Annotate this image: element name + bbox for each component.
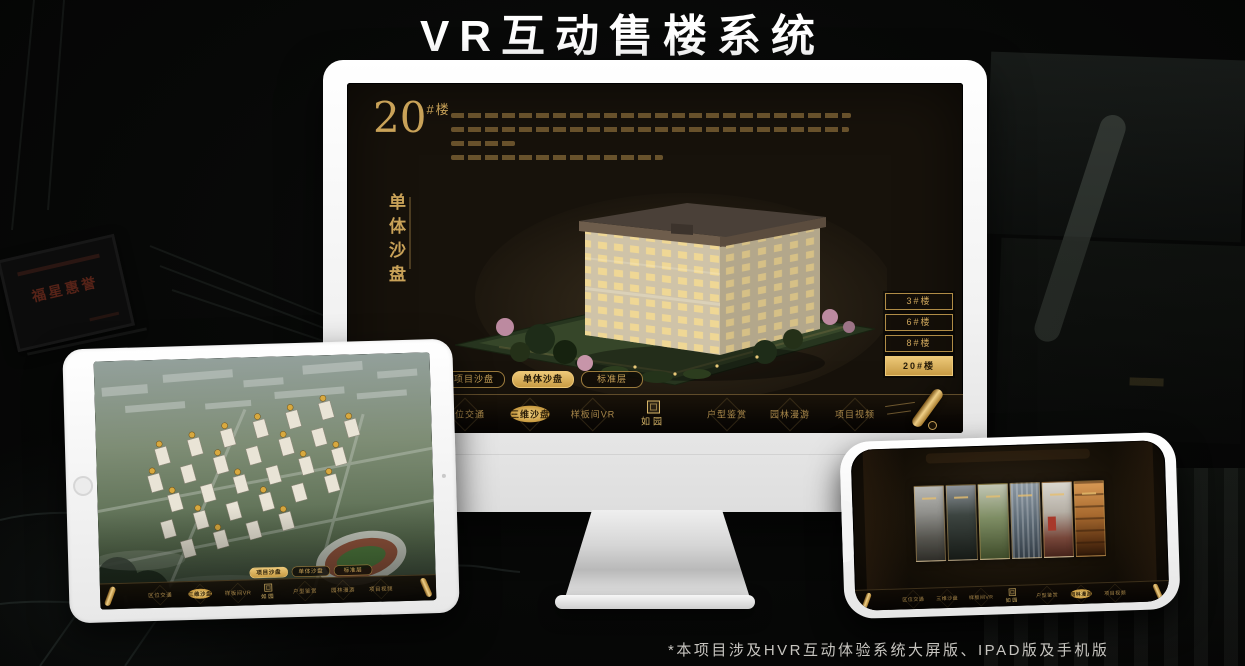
tablet-menu-item-location-traffic[interactable]: 区位交通 bbox=[144, 588, 177, 603]
phone-menu-item-garden-roam-selected[interactable]: 园林漫游 bbox=[1066, 587, 1096, 601]
scroll-end-left bbox=[104, 586, 117, 607]
footnote-text: *本项目涉及HVR互动体验系统大屏版、IPAD版及手机版 bbox=[668, 639, 1109, 660]
scroll-end-right bbox=[1152, 583, 1163, 600]
phone-notch bbox=[841, 499, 854, 561]
tablet-menu-item-showroom-vr[interactable]: 样板间VR bbox=[220, 585, 255, 600]
monitor-stand-neck bbox=[565, 510, 750, 598]
floor-button-6[interactable]: 6#楼 bbox=[885, 314, 953, 331]
scroll-end-right bbox=[419, 577, 433, 598]
scroll-menu-icon[interactable] bbox=[885, 386, 941, 432]
gallery-panel-entrance[interactable] bbox=[946, 484, 978, 561]
tablet-tab-project-sandtable-selected[interactable]: 项目沙盘 bbox=[249, 567, 288, 579]
tablet-menu-item-3d-sandtable-selected[interactable]: 三维沙盘 bbox=[184, 586, 217, 601]
description-line bbox=[451, 155, 663, 160]
tablet-device: 项目沙盘 单体沙盘 标准层 区位交通 三维沙盘 样板间VR 如园 户型鉴赏 园林… bbox=[62, 339, 459, 624]
tab-standard-floor[interactable]: 标准层 bbox=[581, 371, 643, 388]
description-line bbox=[451, 113, 851, 118]
interior-column-decor bbox=[1110, 440, 1157, 602]
description-line bbox=[451, 141, 515, 146]
background-collage-dark-ui bbox=[995, 238, 1245, 444]
monitor-stand-foot bbox=[555, 595, 755, 609]
tab-single-sandtable-selected[interactable]: 单体沙盘 bbox=[512, 371, 574, 388]
tablet-screen: 项目沙盘 单体沙盘 标准层 区位交通 三维沙盘 样板间VR 如园 户型鉴赏 园林… bbox=[94, 352, 437, 609]
scroll-end-left bbox=[862, 592, 872, 609]
menu-item-3d-sandtable-selected[interactable]: 三维沙盘 bbox=[503, 403, 557, 426]
seal-icon bbox=[264, 584, 272, 592]
gallery-panel-lobby[interactable] bbox=[1042, 481, 1074, 558]
unit-subtitle-english-decor bbox=[409, 197, 411, 269]
poster-stage: 福星惠誉 VR互动售楼系统 20#楼 单体沙盘 bbox=[0, 0, 1245, 666]
brand-logo-text: 如园 bbox=[261, 592, 276, 600]
phone-menu-item-3d-sandtable[interactable]: 三维沙盘 bbox=[932, 591, 962, 605]
phone-menu-item-unit-plans[interactable]: 户型鉴赏 bbox=[1032, 588, 1062, 602]
page-title: VR互动售楼系统 bbox=[0, 0, 1245, 64]
tablet-menu-item-project-video[interactable]: 项目视频 bbox=[365, 581, 398, 596]
tablet-menu-item-garden-roam[interactable]: 园林漫游 bbox=[327, 582, 360, 597]
menu-item-garden-roam[interactable]: 园林漫游 bbox=[763, 403, 817, 426]
interior-beam-decor bbox=[926, 448, 1089, 463]
unit-number: 20 bbox=[373, 93, 426, 142]
menu-item-unit-plans[interactable]: 户型鉴赏 bbox=[700, 403, 754, 426]
floor-button-3[interactable]: 3#楼 bbox=[885, 293, 953, 310]
brand-logo: 如园 bbox=[1005, 588, 1019, 603]
seal-icon bbox=[646, 401, 659, 414]
phone-menu-item-location-traffic[interactable]: 区位交通 bbox=[898, 592, 928, 606]
menu-item-showroom-vr[interactable]: 样板间VR bbox=[564, 403, 623, 426]
phone-device: 区位交通 三维沙盘 样板间VR 如园 户型鉴赏 园林漫游 项目视频 bbox=[839, 432, 1180, 619]
unit-number-suffix: #楼 bbox=[426, 102, 450, 117]
brand-logo-text: 如园 bbox=[641, 415, 665, 428]
unit-subtitle-vertical: 单体沙盘 bbox=[383, 193, 408, 289]
interior-column-decor bbox=[863, 448, 910, 610]
brand-logo: 如园 bbox=[261, 584, 276, 601]
gallery-panel-interior[interactable] bbox=[1074, 480, 1106, 557]
scroll-swirl-line bbox=[885, 402, 915, 407]
menu-item-project-video[interactable]: 项目视频 bbox=[828, 403, 882, 426]
brand-logo: 如园 bbox=[641, 401, 665, 428]
scroll-knob bbox=[928, 421, 937, 430]
tablet-tab-single-sandtable[interactable]: 单体沙盘 bbox=[292, 566, 331, 578]
description-line bbox=[451, 127, 849, 132]
phone-menu-item-project-video[interactable]: 项目视频 bbox=[1100, 586, 1130, 600]
floor-button-8[interactable]: 8#楼 bbox=[885, 335, 953, 352]
tablet-menu-item-unit-plans[interactable]: 户型鉴赏 bbox=[289, 583, 322, 598]
seal-icon bbox=[1008, 588, 1015, 595]
phone-screen: 区位交通 三维沙盘 样板间VR 如园 户型鉴赏 园林漫游 项目视频 bbox=[851, 440, 1170, 611]
gallery-panel-garden[interactable] bbox=[978, 483, 1010, 560]
tablet-tab-standard-floor[interactable]: 标准层 bbox=[334, 564, 373, 576]
phone-menu-item-showroom-vr[interactable]: 样板间VR bbox=[965, 590, 998, 604]
floor-button-20-selected[interactable]: 20#楼 bbox=[885, 356, 953, 376]
background-collage-aerial-photo bbox=[985, 52, 1245, 243]
unit-title-block: 20#楼 bbox=[373, 97, 451, 139]
scroll-swirl-line bbox=[887, 410, 911, 414]
building-3d-render[interactable] bbox=[435, 167, 887, 399]
gallery-panel-courtyard[interactable] bbox=[914, 485, 946, 562]
brand-logo-text: 如园 bbox=[1006, 596, 1019, 604]
plaque-sub-line bbox=[89, 312, 119, 322]
gallery-panels bbox=[914, 480, 1106, 562]
gallery-panel-building[interactable] bbox=[1010, 482, 1042, 559]
